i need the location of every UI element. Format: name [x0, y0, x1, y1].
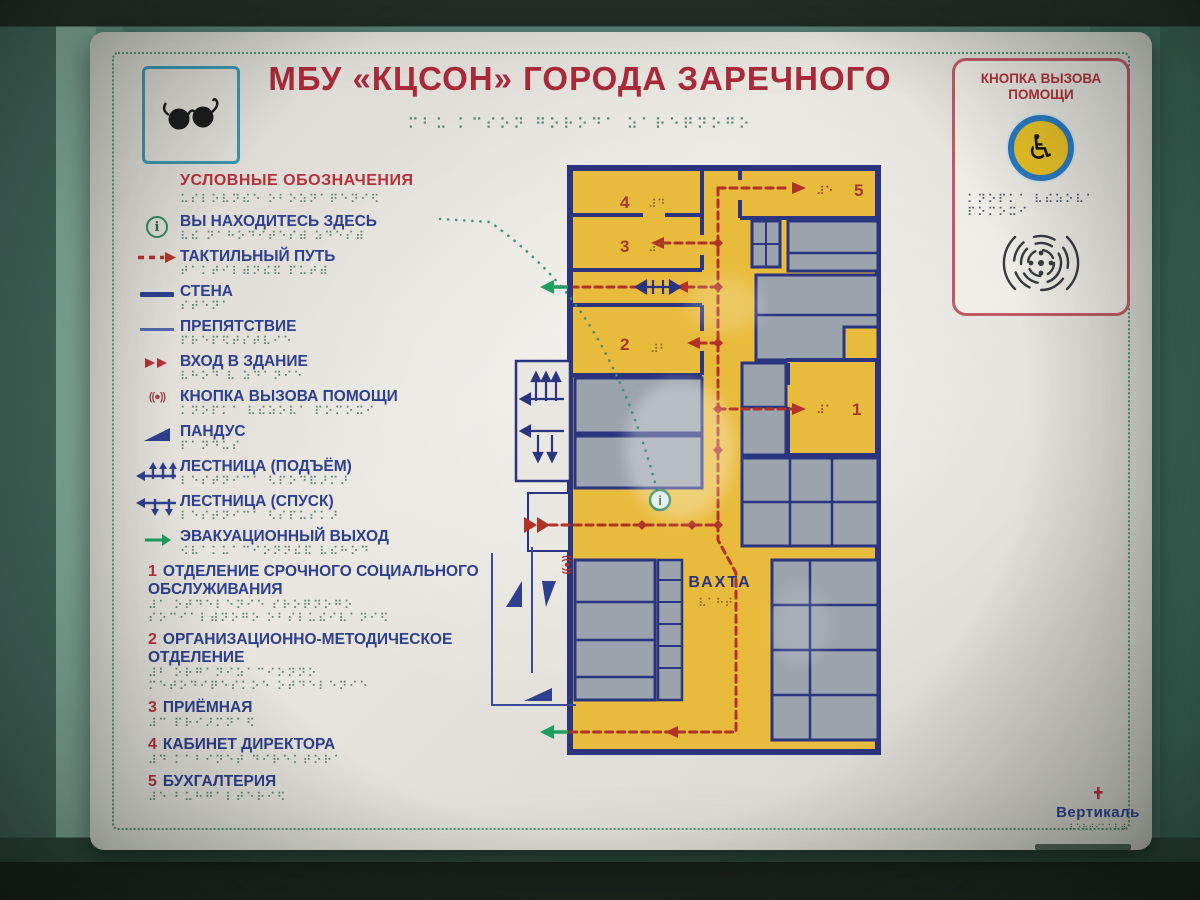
- legend-braille: ⠇⠑⠎⠞⠝⠊⠉⠁ ⠣⠎⠏⠥⠎⠅⠜: [180, 510, 340, 523]
- legend-braille: ⠞⠁⠅⠞⠊⠇⠾⠝⠮⠯ ⠏⠥⠞⠾: [180, 265, 335, 278]
- room-braille: ⠼⠉ ⠏⠗⠊⠜⠍⠝⠁⠫: [148, 717, 482, 730]
- vahta-braille: ⠧⠁⠓⠞⠁: [698, 596, 742, 610]
- legend-header-braille: ⠥⠎⠇⠕⠧⠝⠮⠑ ⠕⠃⠕⠵⠝⠁⠟⠑⠝⠊⠫: [180, 192, 381, 206]
- tactile-path-icon: [136, 251, 178, 264]
- stairs-up-icon: [135, 461, 179, 482]
- tactile-sign-board: МБУ «КЦСОН» ГОРОДА ЗАРЕЧНОГО ⠍⠃⠥ ⠅⠉⠎⠕⠝ ⠛…: [90, 32, 1152, 850]
- svg-text:5: 5: [854, 181, 863, 200]
- page-title: МБУ «КЦСОН» ГОРОДА ЗАРЕЧНОГО: [230, 60, 930, 98]
- help-panel-title-line2: ПОМОЩИ: [981, 87, 1102, 103]
- visually-impaired-glasses-box: [142, 66, 240, 164]
- svg-text:⠼⠃: ⠼⠃: [650, 342, 668, 356]
- legend-item-stairs-up: ЛЕСТНИЦА (ПОДЪЁМ) ⠇⠑⠎⠞⠝⠊⠉⠁ ⠣⠏⠕⠙⠯⠜⠍⠜: [134, 458, 482, 488]
- help-call-panel: КНОПКА ВЫЗОВА ПОМОЩИ ♿ ⠅⠝⠕⠏⠅⠁ ⠧⠮⠵⠕⠧⠁ ⠏⠕⠍…: [952, 58, 1130, 316]
- manufacturer-logo: Вертикаль ⠧⠑⠗⠞⠊⠅⠁⠇⠾: [1028, 786, 1168, 834]
- stairs-down-icon: [135, 496, 179, 517]
- legend-braille: ⠏⠗⠑⠏⠫⠞⠎⠞⠧⠊⠑: [180, 335, 297, 348]
- legend-label: ЛЕСТНИЦА (ПОДЪЁМ): [180, 458, 352, 475]
- legend-label: ПАНДУС: [180, 423, 246, 440]
- svg-text:⠼⠑: ⠼⠑: [816, 184, 834, 198]
- help-braille-line2: ⠏⠕⠍⠕⠭⠊: [967, 206, 1096, 219]
- legend-braille: ⠏⠁⠝⠙⠥⠎: [180, 440, 246, 453]
- legend-label: ТАКТИЛЬНЫЙ ПУТЬ: [180, 248, 335, 265]
- room-label: БУХГАЛТЕРИЯ: [163, 773, 276, 790]
- legend-braille: ⠅⠝⠕⠏⠅⠁ ⠧⠮⠵⠕⠧⠁ ⠏⠕⠍⠕⠭⠊: [180, 405, 398, 418]
- legend-item-wall: СТЕНА ⠎⠞⠑⠝⠁: [134, 283, 482, 313]
- legend-braille: ⠎⠞⠑⠝⠁: [180, 300, 233, 313]
- help-call-button-icon: ((●)): [149, 391, 165, 403]
- svg-text:4: 4: [620, 193, 630, 212]
- you-are-here-icon: i: [146, 216, 168, 238]
- room-number: 1: [148, 563, 157, 580]
- legend-item-entrance: ВХОД В ЗДАНИЕ ⠧⠓⠕⠙ ⠧ ⠵⠙⠁⠝⠊⠑: [134, 353, 482, 383]
- title-braille-text: ⠍⠃⠥ ⠅⠉⠎⠕⠝ ⠛⠕⠗⠕⠙⠁ ⠵⠁⠗⠑⠟⠝⠕⠛⠕: [408, 115, 753, 133]
- legend-room-4: 4КАБИНЕТ ДИРЕКТОРА ⠼⠙ ⠅⠁⠃⠊⠝⠑⠞ ⠙⠊⠗⠑⠅⠞⠕⠗⠁: [148, 736, 482, 767]
- wall-icon: [140, 292, 174, 297]
- legend-room-3: 3ПРИЁМНАЯ ⠼⠉ ⠏⠗⠊⠜⠍⠝⠁⠫: [148, 699, 482, 730]
- svg-text:⠼⠁: ⠼⠁: [816, 403, 834, 417]
- room-label: ОТДЕЛЕНИЕ СРОЧНОГО СОЦИАЛЬНОГО ОБСЛУЖИВА…: [148, 563, 479, 598]
- dark-glasses-icon: [155, 94, 227, 136]
- fine-print: [1035, 844, 1131, 850]
- room-braille: ⠍⠑⠞⠕⠙⠊⠟⠑⠎⠅⠕⠑ ⠕⠞⠙⠑⠇⠑⠝⠊⠑: [148, 680, 482, 693]
- ramp-icon: [142, 426, 172, 443]
- evacuation-exit-icon: [142, 531, 172, 547]
- legend-label: СТЕНА: [180, 283, 233, 300]
- legend: УСЛОВНЫЕ ОБОЗНАЧЕНИЯ ⠥⠎⠇⠕⠧⠝⠮⠑ ⠕⠃⠕⠵⠝⠁⠟⠑⠝⠊…: [134, 172, 482, 810]
- room-braille: ⠼⠑ ⠃⠥⠓⠛⠁⠇⠞⠑⠗⠊⠫: [148, 791, 482, 804]
- help-button-marker: ((●)): [561, 555, 572, 574]
- legend-label: ВЫ НАХОДИТЕСЬ ЗДЕСЬ: [180, 213, 377, 230]
- svg-text:2: 2: [620, 335, 629, 354]
- legend-room-2: 2ОРГАНИЗАЦИОННО-МЕТОДИЧЕСКОЕ ОТДЕЛЕНИЕ ⠼…: [148, 631, 482, 693]
- legend-item-evac-exit: ЭВАКУАЦИОННЫЙ ВЫХОД ⠪⠧⠁⠅⠥⠁⠉⠊⠕⠝⠝⠮⠯ ⠧⠮⠓⠕⠙: [134, 528, 482, 558]
- svg-text:3: 3: [620, 237, 629, 256]
- logo-braille: ⠧⠑⠗⠞⠊⠅⠁⠇⠾: [1028, 821, 1168, 834]
- legend-braille: ⠇⠑⠎⠞⠝⠊⠉⠁ ⠣⠏⠕⠙⠯⠜⠍⠜: [180, 475, 352, 488]
- room-number: 2: [148, 631, 157, 648]
- legend-item-obstacle: ПРЕПЯТСТВИЕ ⠏⠗⠑⠏⠫⠞⠎⠞⠧⠊⠑: [134, 318, 482, 348]
- legend-item-ramp: ПАНДУС ⠏⠁⠝⠙⠥⠎: [134, 423, 482, 453]
- room-number: 5: [148, 773, 157, 790]
- legend-braille: ⠪⠧⠁⠅⠥⠁⠉⠊⠕⠝⠝⠮⠯ ⠧⠮⠓⠕⠙: [180, 545, 389, 558]
- entrance-vestibule: [528, 493, 568, 551]
- help-panel-title: КНОПКА ВЫЗОВА ПОМОЩИ: [981, 71, 1102, 103]
- legend-room-5: 5БУХГАЛТЕРИЯ ⠼⠑ ⠃⠥⠓⠛⠁⠇⠞⠑⠗⠊⠫: [148, 773, 482, 804]
- legend-label: ВХОД В ЗДАНИЕ: [180, 353, 308, 370]
- svg-text:⠼⠙: ⠼⠙: [648, 197, 666, 211]
- legend-braille: ⠧⠮ ⠝⠁⠓⠕⠙⠊⠞⠑⠎⠾ ⠵⠙⠑⠎⠾: [180, 230, 377, 243]
- room-number: 4: [148, 736, 157, 753]
- legend-item-you-are-here: i ВЫ НАХОДИТЕСЬ ЗДЕСЬ ⠧⠮ ⠝⠁⠓⠕⠙⠊⠞⠑⠎⠾ ⠵⠙⠑⠎…: [134, 213, 482, 243]
- room-braille: ⠼⠙ ⠅⠁⠃⠊⠝⠑⠞ ⠙⠊⠗⠑⠅⠞⠕⠗⠁: [148, 754, 482, 767]
- obstacle-icon: [140, 328, 174, 331]
- legend-label: ПРЕПЯТСТВИЕ: [180, 318, 297, 335]
- legend-label: КНОПКА ВЫЗОВА ПОМОЩИ: [180, 388, 398, 405]
- speaker-sound-icon: [998, 225, 1084, 301]
- legend-braille: ⠧⠓⠕⠙ ⠧ ⠵⠙⠁⠝⠊⠑: [180, 370, 308, 383]
- legend-item-help-button: ((●)) КНОПКА ВЫЗОВА ПОМОЩИ ⠅⠝⠕⠏⠅⠁ ⠧⠮⠵⠕⠧⠁…: [134, 388, 482, 418]
- vahta-label: ВАХТА: [688, 574, 751, 591]
- wheelchair-icon: ♿: [1008, 115, 1074, 181]
- legend-item-tactile-path: ТАКТИЛЬНЫЙ ПУТЬ ⠞⠁⠅⠞⠊⠇⠾⠝⠮⠯ ⠏⠥⠞⠾: [134, 248, 482, 278]
- logo-cross-icon: [1092, 787, 1104, 799]
- legend-room-1: 1ОТДЕЛЕНИЕ СРОЧНОГО СОЦИАЛЬНОГО ОБСЛУЖИВ…: [148, 563, 482, 625]
- svg-text:⠼⠉: ⠼⠉: [648, 241, 666, 255]
- room-label: КАБИНЕТ ДИРЕКТОРА: [163, 736, 335, 753]
- room-number: 3: [148, 699, 157, 716]
- legend-label: ЭВАКУАЦИОННЫЙ ВЫХОД: [180, 528, 389, 545]
- help-panel-braille: ⠅⠝⠕⠏⠅⠁ ⠧⠮⠵⠕⠧⠁ ⠏⠕⠍⠕⠭⠊: [967, 193, 1096, 219]
- room-braille: ⠎⠕⠉⠊⠁⠇⠾⠝⠕⠛⠕ ⠕⠃⠎⠇⠥⠮⠊⠧⠁⠝⠊⠫: [148, 612, 482, 625]
- legend-item-stairs-down: ЛЕСТНИЦА (СПУСК) ⠇⠑⠎⠞⠝⠊⠉⠁ ⠣⠎⠏⠥⠎⠅⠜: [134, 493, 482, 523]
- help-panel-title-line1: КНОПКА ВЫЗОВА: [981, 71, 1102, 87]
- room-label: ПРИЁМНАЯ: [163, 699, 252, 716]
- photo-of-tactile-sign: { "colors": { "wall_teal": "#5c887b", "b…: [0, 0, 1200, 900]
- building-entrance-icon: [143, 356, 171, 370]
- svg-text:1: 1: [852, 400, 861, 419]
- legend-header: УСЛОВНЫЕ ОБОЗНАЧЕНИЯ: [180, 172, 482, 190]
- floor-plan: ((●)) i 4 ⠼⠙ 3 ⠼⠉ 2 ⠼⠃ ⠼⠑: [480, 155, 890, 770]
- title-braille: ⠍⠃⠥ ⠅⠉⠎⠕⠝ ⠛⠕⠗⠕⠙⠁ ⠵⠁⠗⠑⠟⠝⠕⠛⠕: [230, 116, 930, 134]
- legend-label: ЛЕСТНИЦА (СПУСК): [180, 493, 340, 510]
- room-label: ОРГАНИЗАЦИОННО-МЕТОДИЧЕСКОЕ ОТДЕЛЕНИЕ: [148, 631, 452, 666]
- wheelchair-glyph: ♿: [1026, 131, 1056, 165]
- logo-text: Вертикаль: [1028, 804, 1168, 821]
